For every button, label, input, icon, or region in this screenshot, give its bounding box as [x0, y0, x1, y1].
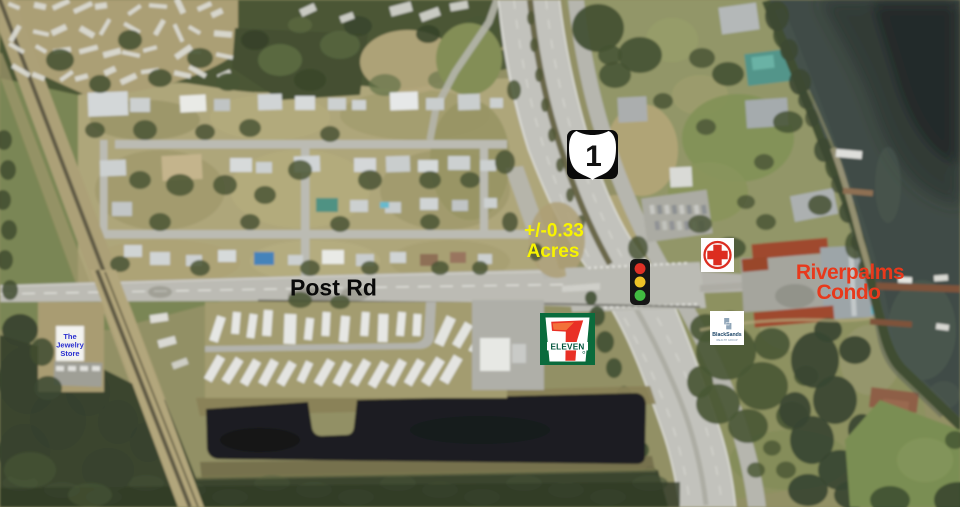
svg-text:ELEVEN: ELEVEN — [551, 343, 585, 352]
svg-text:Store: Store — [60, 349, 79, 358]
svg-text:+/-0.33: +/-0.33 — [524, 221, 584, 242]
svg-text:1: 1 — [585, 140, 602, 173]
svg-text:WEALTH GROUP: WEALTH GROUP — [716, 339, 738, 342]
svg-text:Condo: Condo — [817, 281, 881, 304]
svg-text:Post Rd: Post Rd — [290, 275, 377, 301]
svg-text:Acres: Acres — [527, 241, 580, 262]
svg-text:BlackSands: BlackSands — [712, 332, 742, 338]
